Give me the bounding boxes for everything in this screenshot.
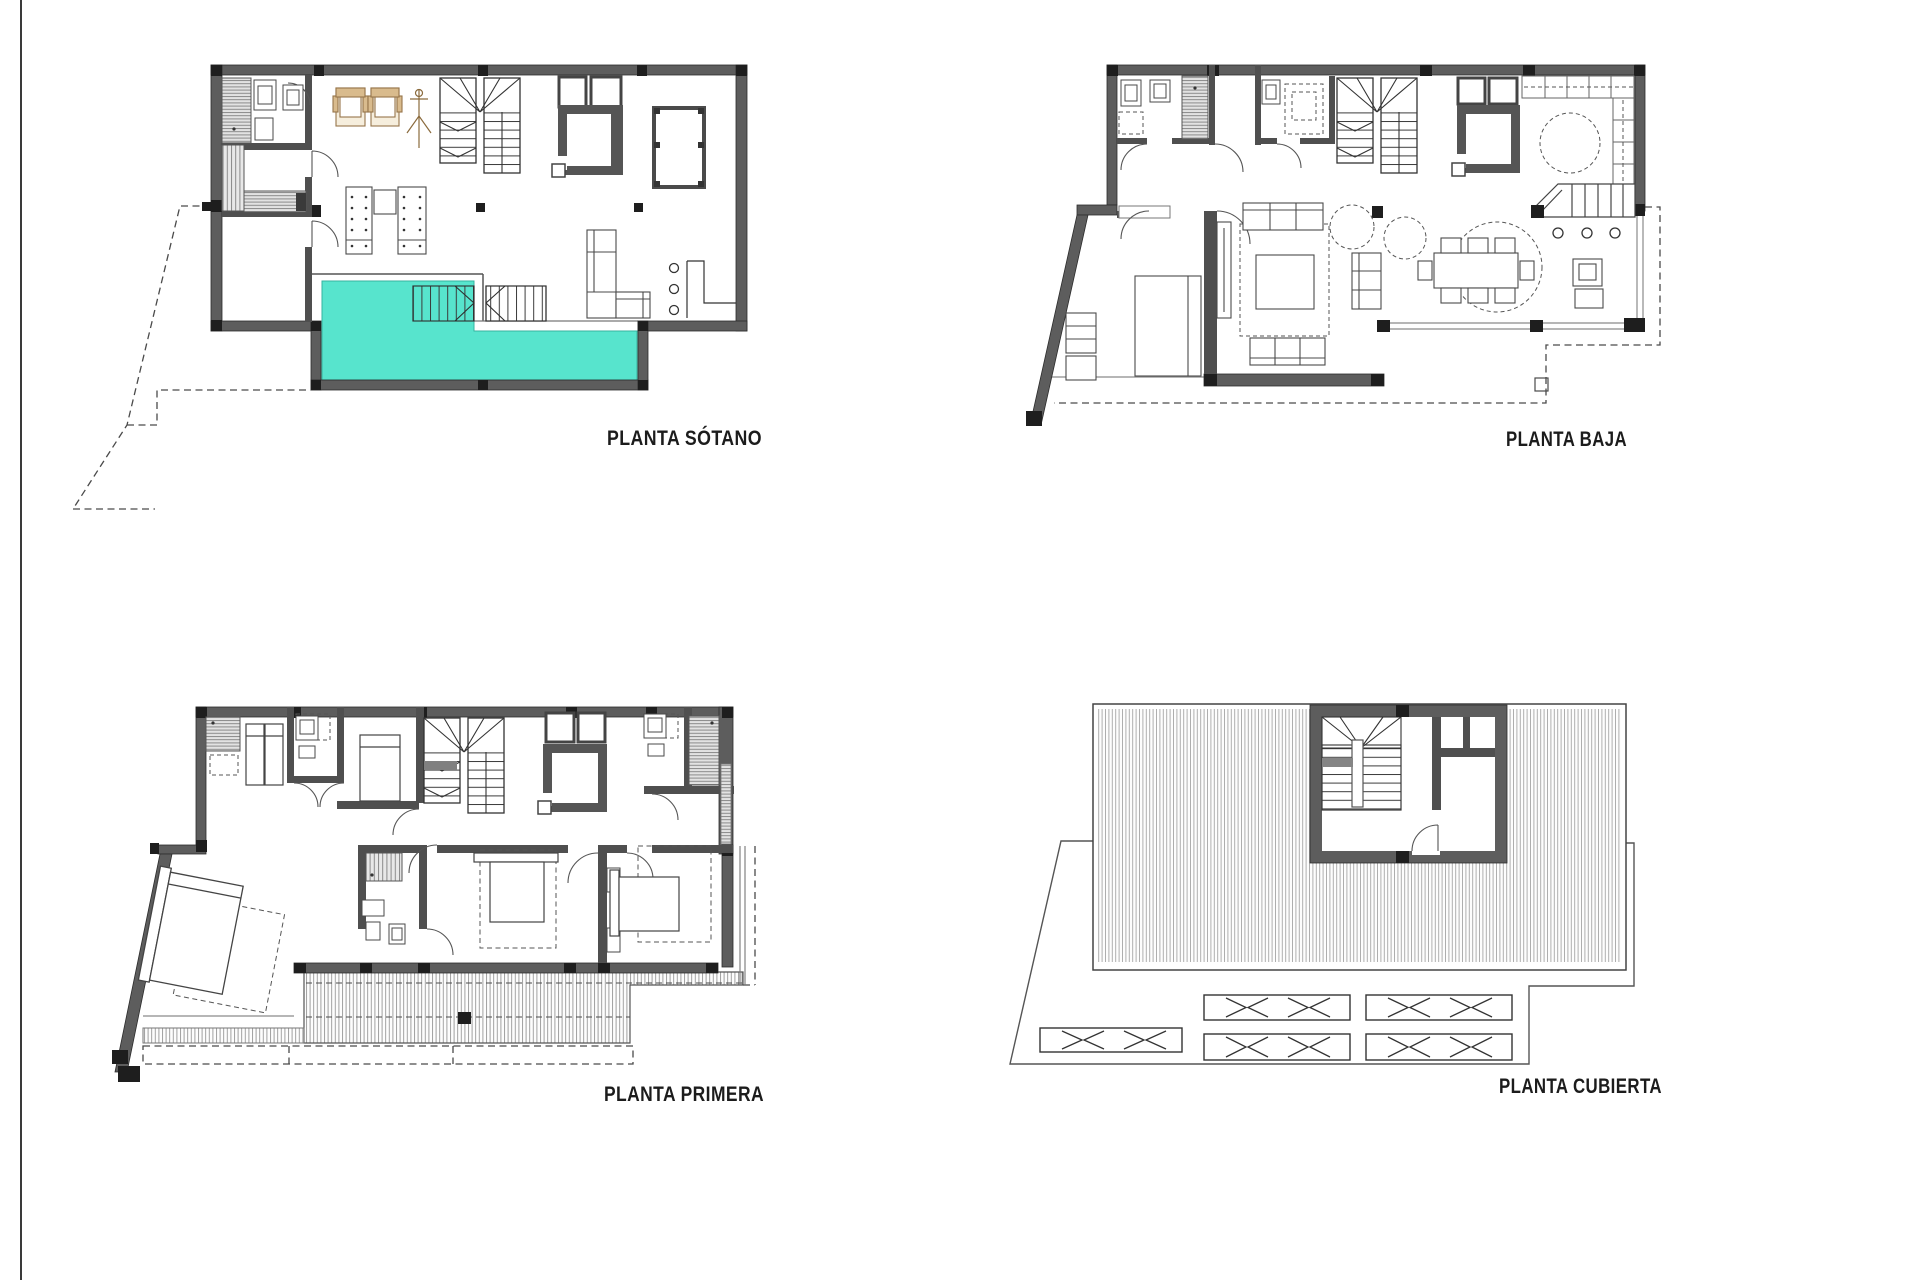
svg-text:PLANTA BAJA: PLANTA BAJA xyxy=(1506,428,1627,451)
svg-text:PLANTA PRIMERA: PLANTA PRIMERA xyxy=(604,1083,764,1106)
svg-text:PLANTA SÓTANO: PLANTA SÓTANO xyxy=(607,426,762,450)
svg-text:PLANTA CUBIERTA: PLANTA CUBIERTA xyxy=(1499,1075,1662,1098)
